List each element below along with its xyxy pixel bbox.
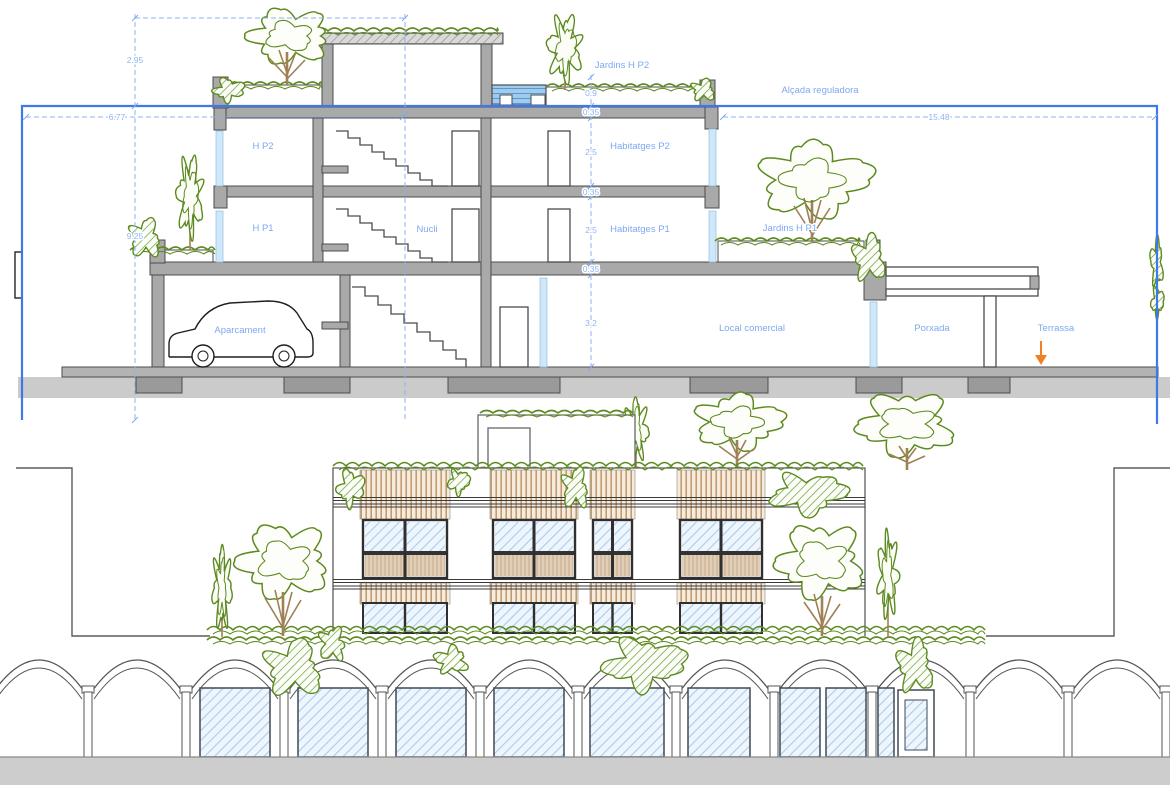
neighbor-building-left bbox=[16, 468, 210, 636]
door-p1 bbox=[452, 209, 479, 262]
door-glass bbox=[905, 700, 927, 750]
glazing-p1-right bbox=[709, 211, 716, 262]
storefront-glass bbox=[396, 688, 466, 757]
storefront-glass bbox=[494, 688, 564, 757]
arcade-pier bbox=[770, 692, 778, 757]
glazing-ground-hall bbox=[540, 278, 547, 367]
arcade-pier bbox=[868, 692, 876, 757]
arcade-pier bbox=[966, 692, 974, 757]
roof-pool bbox=[492, 85, 546, 105]
arcade-arches bbox=[0, 660, 1170, 757]
label-local-comercial: Local comercial bbox=[719, 323, 785, 334]
label-aparcament: Aparcament bbox=[214, 325, 266, 336]
storefront-glass bbox=[688, 688, 750, 757]
slat-panel-upper bbox=[590, 470, 635, 519]
elevation-arcade bbox=[0, 660, 1170, 757]
dim-roof-parapet: 0.9 bbox=[585, 88, 597, 98]
slab-p1 bbox=[150, 262, 866, 275]
door-p1-b bbox=[548, 209, 570, 262]
label-habitatges-p2: Habitatges P2 bbox=[610, 141, 670, 152]
dim-regulatory-height: 9.25 bbox=[127, 231, 144, 241]
label-terrassa: Terrassa bbox=[1038, 323, 1075, 334]
dim-slab-low: 0.35 bbox=[583, 264, 600, 274]
tree-canopy bbox=[245, 8, 326, 64]
label-hp2: H P2 bbox=[252, 141, 273, 152]
entrance-arrow-icon bbox=[1035, 341, 1047, 365]
parking-wall bbox=[340, 275, 350, 367]
elevation-ground bbox=[0, 757, 1170, 785]
dim-ground-floor: 3.2 bbox=[585, 318, 597, 328]
terrace-planter-box bbox=[165, 250, 213, 262]
window-mullion bbox=[611, 520, 614, 578]
label-jardins-hp1: Jardins H P1 bbox=[763, 223, 817, 234]
shrub-band bbox=[480, 411, 633, 414]
arcade-pier bbox=[672, 692, 680, 757]
stair-landing bbox=[322, 244, 348, 251]
arcade-pier bbox=[574, 692, 582, 757]
arch-inner bbox=[94, 668, 180, 699]
arcade-pier bbox=[1162, 692, 1170, 757]
canopy-column bbox=[984, 296, 996, 367]
vine-blob bbox=[896, 637, 933, 693]
dim-slab-mid: 0.35 bbox=[583, 187, 600, 197]
street-ground bbox=[0, 757, 1170, 785]
slab-p2 bbox=[216, 186, 717, 197]
pool-bench bbox=[531, 95, 545, 105]
arcade-pier bbox=[1064, 692, 1072, 757]
pool-step bbox=[500, 95, 512, 105]
arch-outer bbox=[1068, 660, 1166, 697]
tree-canopy bbox=[854, 395, 954, 458]
core-wall-left bbox=[313, 118, 323, 262]
arcade-pier bbox=[378, 692, 386, 757]
cypress-canopy bbox=[212, 544, 232, 628]
car-hubcap bbox=[198, 351, 208, 361]
porch-canopy bbox=[886, 267, 1039, 367]
shrub-band bbox=[315, 28, 498, 31]
core-wall-right bbox=[481, 118, 491, 367]
arcade-storefronts bbox=[200, 688, 934, 757]
elevation-drawing bbox=[0, 392, 1170, 785]
slat-panel-upper bbox=[677, 470, 765, 519]
slat-panel-upper bbox=[360, 470, 450, 519]
stair-landing bbox=[322, 166, 348, 173]
storefront-glass bbox=[826, 688, 866, 757]
beam bbox=[214, 186, 227, 208]
window-mullion bbox=[720, 520, 723, 578]
label-hp1: H P1 bbox=[252, 223, 273, 234]
beam bbox=[214, 107, 226, 130]
window-mullion-lower bbox=[720, 603, 722, 633]
label-jardins-hp2: Jardins H P2 bbox=[595, 60, 649, 71]
architectural-drawing-sheet: 2.95 6.77 9.25 15.48 0.9 0.35 2.5 0.35 2… bbox=[0, 0, 1170, 785]
arcade-pier bbox=[476, 692, 484, 757]
vine-blob bbox=[263, 638, 320, 695]
dim-right-width: 15.48 bbox=[928, 112, 950, 122]
slab-roof bbox=[216, 107, 717, 118]
label-porxada: Porxada bbox=[914, 323, 950, 334]
tree-canopy bbox=[758, 139, 876, 219]
car-hubcap bbox=[279, 351, 289, 361]
glazing-p2-right bbox=[709, 129, 716, 186]
canopy-slab bbox=[886, 267, 1038, 276]
arcade-pier bbox=[280, 692, 288, 757]
storefront-glass bbox=[298, 688, 368, 757]
drawing-canvas: 2.95 6.77 9.25 15.48 0.9 0.35 2.5 0.35 2… bbox=[0, 0, 1170, 785]
glazing-p2-left bbox=[216, 131, 223, 186]
beam bbox=[705, 107, 718, 129]
section-drawing: 2.95 6.77 9.25 15.48 0.9 0.35 2.5 0.35 2… bbox=[15, 8, 1170, 424]
beam bbox=[705, 186, 719, 208]
ground-slab bbox=[62, 367, 1158, 377]
door-p2-b bbox=[548, 131, 570, 186]
arch-inner bbox=[1074, 668, 1160, 699]
arch-inner bbox=[976, 668, 1062, 699]
dim-tower-height: 2.95 bbox=[127, 55, 144, 65]
arcade-pier bbox=[182, 692, 190, 757]
window-mullion bbox=[404, 520, 407, 578]
door-p2 bbox=[452, 131, 479, 186]
dim-floor-p1: 2.5 bbox=[585, 225, 597, 235]
dim-floor-p2: 2.5 bbox=[585, 147, 597, 157]
label-nucli: Nucli bbox=[416, 224, 437, 235]
glazing-p1-left bbox=[216, 211, 223, 262]
label-alcada-reguladora: Alçada reguladora bbox=[781, 85, 859, 96]
vine-blob bbox=[691, 78, 714, 101]
arcade-pier bbox=[84, 692, 92, 757]
storefront-glass bbox=[780, 688, 820, 757]
canopy-end-post bbox=[1030, 276, 1039, 289]
storefront-glass bbox=[200, 688, 270, 757]
storefront-glass bbox=[878, 688, 894, 757]
dim-left-width: 6.77 bbox=[109, 112, 126, 122]
glazing-local-right bbox=[870, 302, 877, 367]
stair-landing bbox=[322, 322, 348, 329]
cypress-canopy bbox=[877, 528, 900, 619]
elevation-bulkhead bbox=[478, 415, 635, 468]
vine-blob bbox=[433, 644, 468, 674]
tree-canopy bbox=[234, 525, 326, 599]
door-ground bbox=[500, 307, 528, 367]
window-mullion bbox=[533, 520, 536, 578]
arch-outer bbox=[88, 660, 186, 697]
storefront-glass bbox=[590, 688, 664, 757]
arch-outer bbox=[0, 660, 88, 697]
dim-slab-top: 0.35 bbox=[583, 107, 600, 117]
arch-inner bbox=[0, 668, 82, 699]
arch-outer bbox=[970, 660, 1068, 697]
tree-canopy bbox=[694, 392, 786, 451]
terrace-support-wall bbox=[152, 275, 164, 367]
elevation-roof-trees bbox=[623, 392, 954, 470]
tower-wall-right bbox=[481, 44, 492, 107]
neighbor-building-right bbox=[986, 468, 1170, 636]
canopy-ceiling bbox=[886, 289, 1038, 296]
label-habitatges-p1: Habitatges P1 bbox=[610, 224, 670, 235]
tower-roof-hatch bbox=[311, 34, 502, 43]
arrow-head bbox=[1035, 355, 1047, 365]
